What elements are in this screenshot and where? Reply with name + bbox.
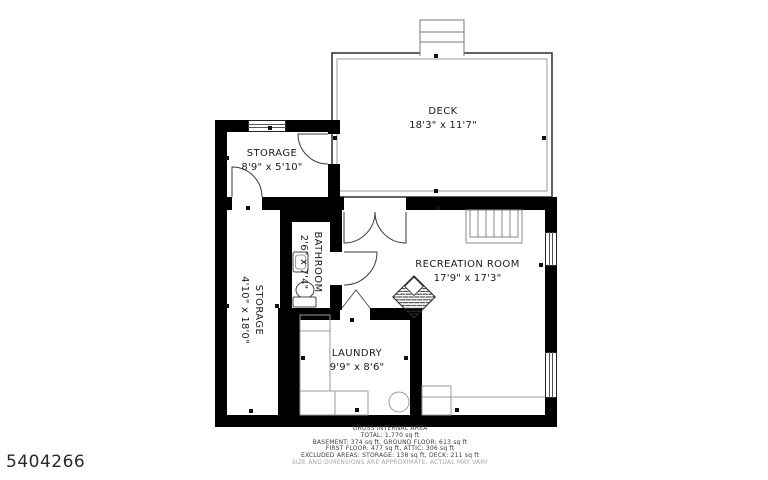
rec-room-bench (422, 386, 545, 415)
room-name: RECREATION ROOM (375, 258, 560, 272)
window-storage-top (248, 121, 286, 132)
door-arc-bathroom (344, 252, 377, 285)
room-label-bathroom: BATHROOM 2'6" x 7'4" (294, 207, 324, 317)
door-arc-french-left (344, 212, 375, 243)
deck-steps-icon (420, 20, 464, 56)
room-name: STORAGE (212, 147, 332, 161)
room-name: DECK (372, 105, 514, 119)
room-dims: 8'9" x 5'10" (212, 161, 332, 175)
room-label-laundry: LAUNDRY 9'9" x 8'6" (296, 347, 418, 375)
floor-plan-drawing (0, 0, 768, 480)
room-label-recreation: RECREATION ROOM 17'9" x 17'3" (375, 258, 560, 286)
room-label-deck: DECK 18'3" x 11'7" (372, 105, 514, 133)
room-label-storage-upper: STORAGE 8'9" x 5'10" (212, 147, 332, 175)
wall-right (545, 197, 557, 232)
room-dims: 4'10" x 18'0" (237, 250, 251, 370)
room-name: LAUNDRY (296, 347, 418, 361)
door-bifold-laundry (342, 290, 370, 308)
listing-id: 5404266 (6, 452, 85, 472)
door-arc-french-right (375, 212, 406, 243)
room-name: STORAGE (251, 250, 265, 370)
area-summary-disclaimer: SIZE AND DIMENSIONS ARE APPROXIMATE, ACT… (240, 460, 540, 467)
window-rec-right-lower (546, 352, 557, 398)
room-dims: 18'3" x 11'7" (372, 119, 514, 133)
room-name: BATHROOM (310, 207, 324, 317)
area-summary: GROSS INTERNAL AREA TOTAL: 1,770 sq ft B… (240, 426, 540, 467)
room-dims: 9'9" x 8'6" (296, 361, 418, 375)
room-dims: 2'6" x 7'4" (296, 207, 310, 317)
laundry-sink-icon (389, 392, 409, 412)
room-dims: 17'9" x 17'3" (375, 272, 560, 286)
stairs-icon (466, 210, 522, 243)
room-label-storage-left: STORAGE 4'10" x 18'0" (233, 250, 265, 370)
floor-plan-page: DECK 18'3" x 11'7" STORAGE 8'9" x 5'10" … (0, 0, 768, 480)
